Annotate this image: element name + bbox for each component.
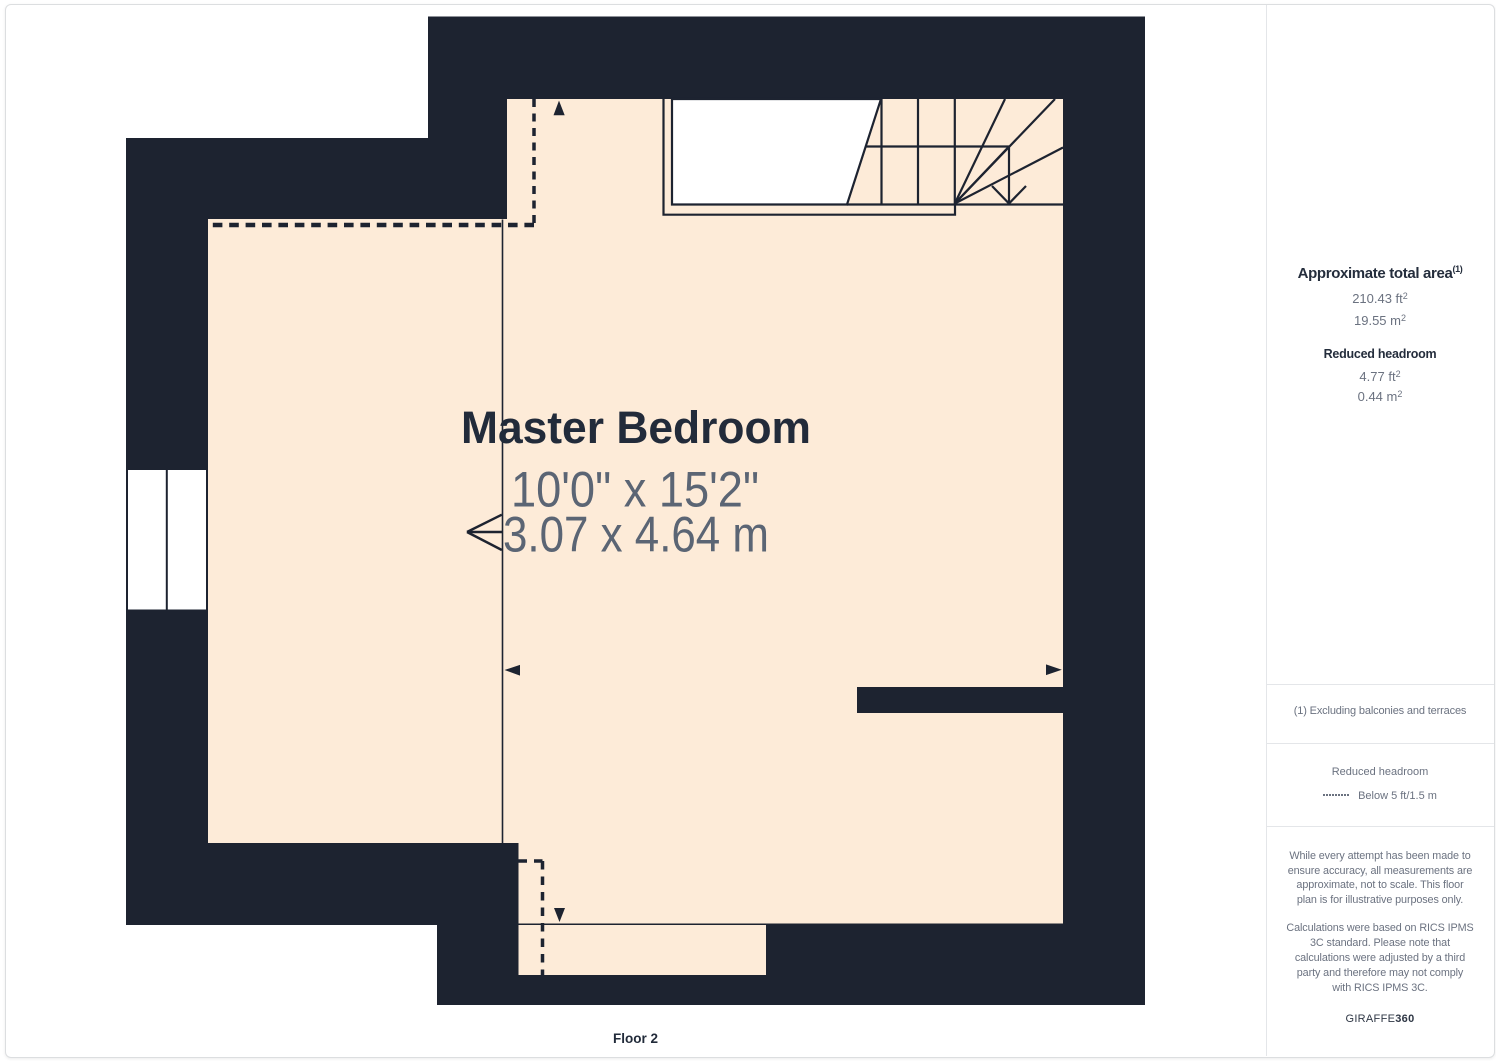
svg-text:3.07 x 4.64 m: 3.07 x 4.64 m bbox=[503, 507, 769, 563]
svg-text:Floor 2: Floor 2 bbox=[613, 1031, 658, 1046]
svg-text:Master Bedroom: Master Bedroom bbox=[461, 402, 811, 453]
